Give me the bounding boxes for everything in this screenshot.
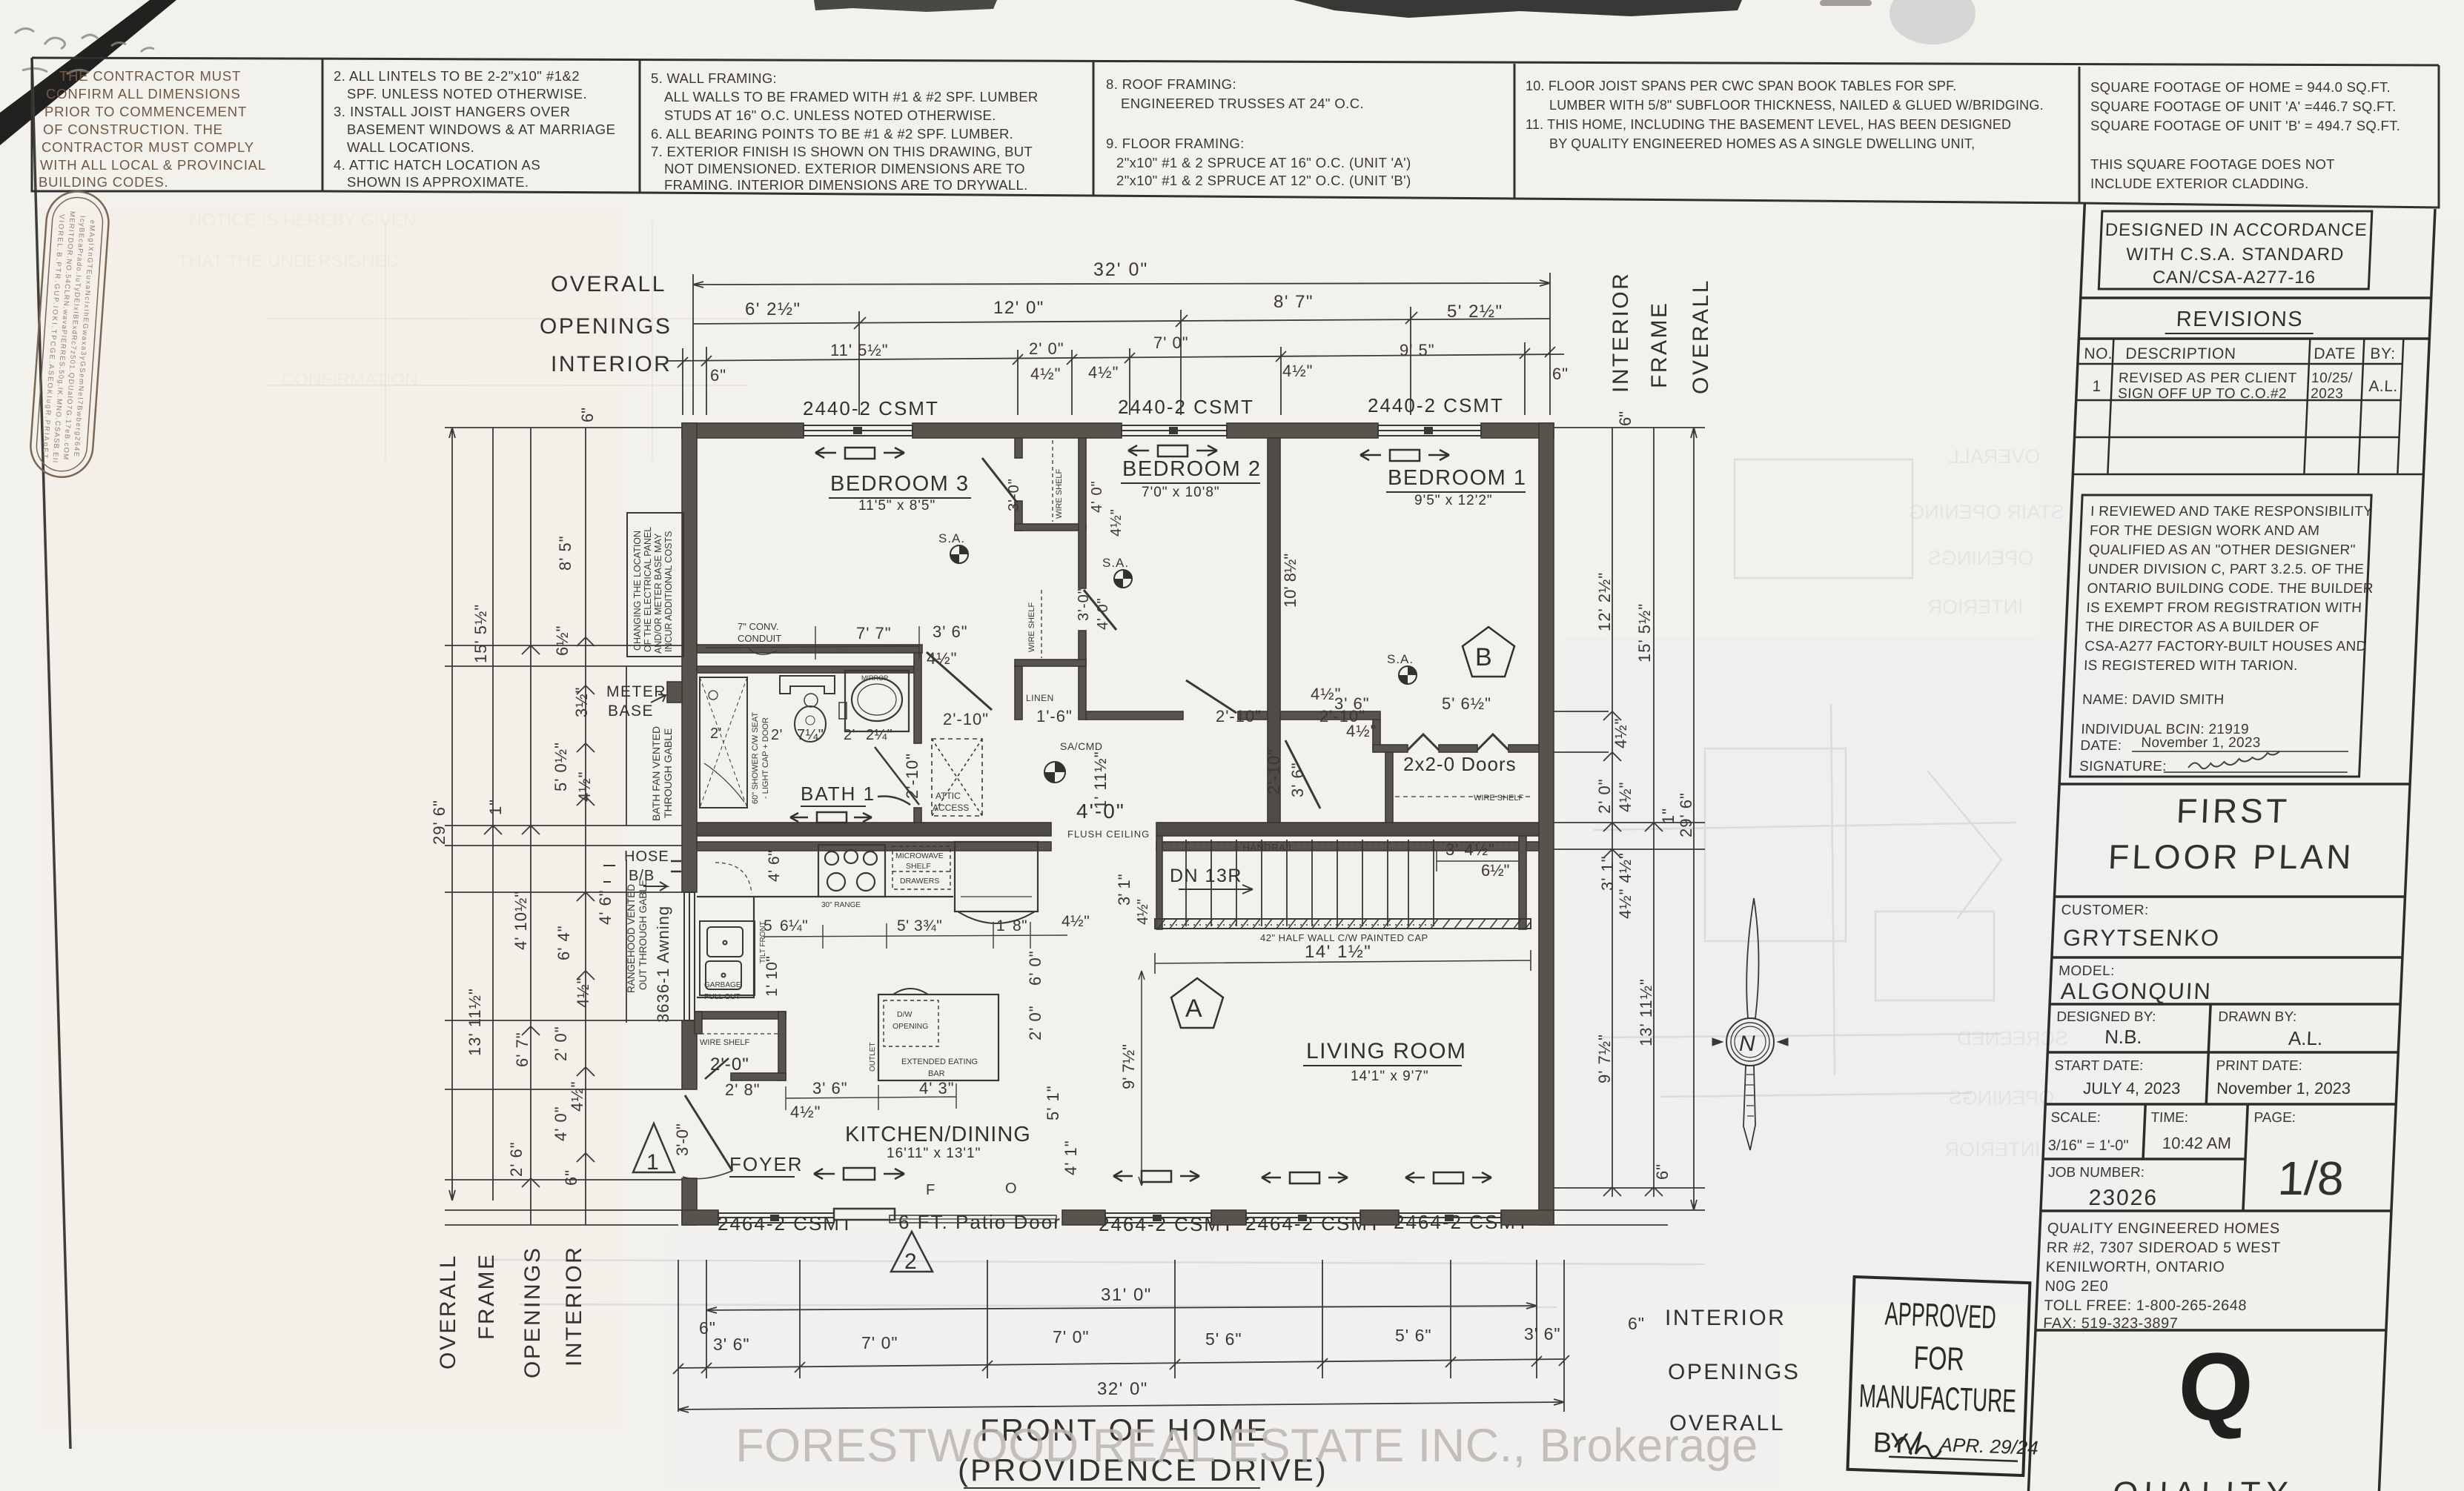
svg-text:THE CONTRACTOR MUST: THE CONTRACTOR MUST [59, 68, 241, 84]
svg-text:BY:: BY: [2370, 345, 2396, 362]
svg-text:3'-0": 3'-0" [673, 1123, 692, 1156]
svg-text:6' 0": 6' 0" [1026, 950, 1044, 986]
svg-text:3' 1": 3' 1" [1115, 874, 1133, 906]
svg-text:6' 4": 6' 4" [554, 925, 573, 960]
svg-text:2': 2' [771, 727, 783, 743]
svg-text:12' 2½": 12' 2½" [1595, 572, 1614, 631]
svg-text:DESIGNED BY:: DESIGNED BY: [2056, 1009, 2156, 1025]
svg-text:OUT THROUGH GABLE: OUT THROUGH GABLE [637, 880, 649, 990]
svg-text:IS REGISTERED WITH TARION.: IS REGISTERED WITH TARION. [2084, 658, 2299, 674]
svg-text:7' 0": 7' 0" [1153, 333, 1189, 352]
svg-text:CONFIRM ALL DIMENSIONS: CONFIRM ALL DIMENSIONS [46, 86, 241, 102]
svg-text:6. ALL BEARING POINTS TO BE #1: 6. ALL BEARING POINTS TO BE #1 & #2 SPF.… [651, 126, 1013, 142]
svg-text:DATE: DATE [2314, 345, 2356, 362]
svg-text:FLUSH CEILING: FLUSH CEILING [1067, 828, 1150, 840]
svg-text:JULY 4, 2023: JULY 4, 2023 [2083, 1079, 2181, 1098]
svg-text:4' 1": 4' 1" [1062, 1140, 1080, 1175]
svg-text:6": 6" [562, 1169, 580, 1186]
svg-text:FRAMING. INTERIOR DIMENSIONS A: FRAMING. INTERIOR DIMENSIONS ARE TO DRYW… [664, 177, 1028, 193]
svg-text:CSA-A277 FACTORY-BUILT HOUSES: CSA-A277 FACTORY-BUILT HOUSES AND [2084, 639, 2367, 654]
svg-text:ONTARIO BUILDING CODE. THE BUI: ONTARIO BUILDING CODE. THE BUILDER [2087, 581, 2374, 597]
svg-text:7' 7": 7' 7" [856, 624, 892, 642]
svg-text:CAN/CSA-A277-16: CAN/CSA-A277-16 [2152, 268, 2316, 288]
svg-text:INCLUDE EXTERIOR CLADDING.: INCLUDE EXTERIOR CLADDING. [2090, 176, 2309, 191]
svg-text:FOR: FOR [1913, 1340, 1965, 1378]
svg-text:QUALITY ENGINEERED HOMES: QUALITY ENGINEERED HOMES [2047, 1221, 2280, 1237]
svg-text:OPENINGS: OPENINGS [1928, 547, 2034, 569]
svg-text:2. ALL LINTELS TO BE 2-2"x10": 2. ALL LINTELS TO BE 2-2"x10" #1&2 [334, 68, 580, 84]
svg-text:4' 10½": 4' 10½" [511, 891, 530, 950]
svg-text:INTERIOR: INTERIOR [1944, 1138, 2040, 1160]
svg-text:ENGINEERED TRUSSES AT 24" O.C.: ENGINEERED TRUSSES AT 24" O.C. [1121, 96, 1364, 111]
svg-text:THROUGH GABLE: THROUGH GABLE [662, 728, 674, 818]
svg-text:Q: Q [2176, 1332, 2255, 1441]
svg-text:8' 5": 8' 5" [556, 535, 574, 571]
svg-text:WALL LOCATIONS.: WALL LOCATIONS. [347, 139, 474, 155]
svg-text:60" SHOWER C/W SEAT: 60" SHOWER C/W SEAT [751, 712, 760, 804]
svg-text:32' 0": 32' 0" [1097, 1379, 1148, 1399]
svg-text:4½": 4½" [790, 1103, 821, 1121]
svg-text:RR #2, 7307 SIDEROAD 5 WEST: RR #2, 7307 SIDEROAD 5 WEST [2046, 1240, 2281, 1256]
svg-text:10:42 AM: 10:42 AM [2162, 1134, 2231, 1152]
svg-text:ACCESS: ACCESS [933, 803, 969, 813]
svg-text:BY: BY [1872, 1427, 1909, 1460]
svg-text:BASEMENT WINDOWS & AT MARRIAGE: BASEMENT WINDOWS & AT MARRIAGE [347, 122, 615, 137]
svg-text:4½": 4½" [1062, 913, 1090, 930]
svg-text:4' 0": 4' 0" [1095, 597, 1111, 630]
svg-text:LUMBER WITH 5/8" SUBFLOOR THIC: LUMBER WITH 5/8" SUBFLOOR THICKNESS, NAI… [1549, 98, 2044, 113]
svg-text:6' 7": 6' 7" [513, 1032, 531, 1067]
svg-text:INTERIOR: INTERIOR [1927, 596, 2023, 618]
svg-text:2': 2' [710, 725, 722, 742]
svg-text:5' 6½": 5' 6½" [1442, 694, 1491, 713]
svg-text:2' 6": 2' 6" [507, 1141, 526, 1177]
svg-text:10' 8½": 10' 8½" [1281, 554, 1299, 608]
svg-text:2023: 2023 [2311, 386, 2344, 402]
svg-text:4½": 4½" [1616, 782, 1635, 812]
svg-text:2"x10" #1 & 2 SPRUCE AT 12" O.: 2"x10" #1 & 2 SPRUCE AT 12" O.C. (UNIT '… [1116, 173, 1411, 188]
svg-text:REVISIONS: REVISIONS [2176, 308, 2304, 331]
svg-text:November 1, 2023: November 1, 2023 [2141, 735, 2261, 751]
svg-text:PRIOR TO COMMENCEMENT: PRIOR TO COMMENCEMENT [44, 104, 247, 119]
svg-text:8. ROOF FRAMING:: 8. ROOF FRAMING: [1106, 76, 1236, 92]
svg-text:KENILWORTH, ONTARIO: KENILWORTH, ONTARIO [2045, 1259, 2225, 1275]
svg-text:BEDROOM 3: BEDROOM 3 [830, 472, 970, 496]
svg-text:DATE:: DATE: [2080, 738, 2122, 754]
svg-text:HOSE: HOSE [624, 849, 669, 865]
svg-text:OVERALL: OVERALL [1948, 445, 2041, 468]
svg-text:METER: METER [606, 683, 666, 700]
svg-text:4½": 4½" [1108, 508, 1125, 537]
svg-text:FOR THE DESIGN WORK AND AM: FOR THE DESIGN WORK AND AM [2090, 523, 2320, 539]
svg-text:1: 1 [2092, 378, 2102, 395]
svg-text:7'0" x 10'8": 7'0" x 10'8" [1142, 485, 1220, 500]
svg-text:SPF. UNLESS NOTED OTHERWISE.: SPF. UNLESS NOTED OTHERWISE. [347, 86, 587, 102]
svg-text:APPROVED: APPROVED [1884, 1295, 1997, 1335]
svg-text:STAIR OPENING: STAIR OPENING [1909, 501, 2064, 523]
svg-text:4½": 4½" [1135, 899, 1151, 925]
svg-text:2440-2 CSMT: 2440-2 CSMT [803, 397, 939, 419]
svg-text:BUILDING CODES.: BUILDING CODES. [39, 174, 168, 190]
svg-text:NOT DIMENSIONED. EXTERIOR DIME: NOT DIMENSIONED. EXTERIOR DIMENSIONS ARE… [664, 161, 1025, 176]
svg-text:11. THIS HOME, INCLUDING THE B: 11. THIS HOME, INCLUDING THE BASEMENT LE… [1526, 117, 2011, 132]
svg-text:7' 0": 7' 0" [1053, 1327, 1090, 1346]
svg-text:MICROWAVE: MICROWAVE [895, 851, 944, 860]
svg-text:OUTLET: OUTLET [869, 1043, 877, 1072]
svg-text:3. INSTALL JOIST HANGERS OVER: 3. INSTALL JOIST HANGERS OVER [334, 104, 571, 119]
svg-text:31' 0": 31' 0" [1101, 1285, 1152, 1305]
svg-text:S.A.: S.A. [1387, 652, 1414, 666]
svg-text:2': 2' [844, 727, 855, 743]
svg-text:2¼": 2¼" [866, 727, 892, 743]
svg-text:1: 1 [646, 1150, 659, 1175]
svg-text:5' 6": 5' 6" [1205, 1329, 1242, 1349]
svg-text:JOB NUMBER:: JOB NUMBER: [2048, 1165, 2145, 1180]
svg-text:SHELF: SHELF [906, 862, 931, 871]
svg-text:4½": 4½" [927, 649, 957, 668]
svg-text:OPENINGS: OPENINGS [540, 314, 672, 339]
svg-text:2440-2 CSMT: 2440-2 CSMT [1368, 394, 1504, 416]
svg-text:2'-10": 2'-10" [1216, 707, 1262, 725]
svg-text:4½" 4½": 4½" 4½" [1616, 852, 1635, 919]
svg-text:NOTICE IS HEREBY GIVEN: NOTICE IS HEREBY GIVEN [189, 210, 416, 230]
svg-text:16'11" x 13'1": 16'11" x 13'1" [887, 1146, 981, 1161]
svg-text:SQUARE FOOTAGE OF UNIT 'A' =44: SQUARE FOOTAGE OF UNIT 'A' =446.7 SQ.FT. [2090, 99, 2397, 114]
svg-text:STUDS AT 16" O.C. UNLESS NOTED: STUDS AT 16" O.C. UNLESS NOTED OTHERWISE… [664, 107, 996, 123]
svg-text:BATH 1: BATH 1 [801, 783, 875, 805]
svg-text:6": 6" [1552, 365, 1569, 383]
svg-text:START DATE:: START DATE: [2054, 1058, 2144, 1074]
svg-text:7. EXTERIOR FINISH IS SHOWN ON: 7. EXTERIOR FINISH IS SHOWN ON THIS DRAW… [651, 144, 1033, 159]
svg-text:N0G 2E0: N0G 2E0 [2044, 1278, 2109, 1295]
svg-text:○ HANDRAIL: ○ HANDRAIL [1233, 842, 1294, 853]
svg-text:FRAME: FRAME [1647, 302, 1672, 389]
svg-text:6": 6" [1616, 411, 1635, 426]
svg-text:5: 5 [764, 917, 772, 934]
svg-text:3/16" = 1'-0": 3/16" = 1'-0" [2047, 1138, 2129, 1154]
svg-text:O: O [1005, 1180, 1017, 1197]
svg-text:8' 7": 8' 7" [1274, 292, 1314, 312]
svg-text:5. WALL FRAMING:: 5. WALL FRAMING: [651, 70, 777, 86]
svg-text:WIRE SHELF: WIRE SHELF [1474, 794, 1524, 803]
svg-text:6' 2½": 6' 2½" [745, 299, 801, 319]
svg-text:N: N [1739, 1032, 1755, 1056]
svg-text:BATH FAN VENTED: BATH FAN VENTED [650, 726, 662, 821]
svg-text:TOLL FREE: 1-800-265-2648: TOLL FREE: 1-800-265-2648 [2044, 1298, 2248, 1314]
svg-text:WIRE SHELF: WIRE SHELF [1027, 602, 1036, 652]
svg-text:9'5" x 12'2": 9'5" x 12'2" [1414, 493, 1493, 508]
svg-text:2x2-0 Doors: 2x2-0 Doors [1403, 753, 1517, 775]
svg-text:THE DIRECTOR AS A BUILDER OF: THE DIRECTOR AS A BUILDER OF [2085, 620, 2319, 635]
svg-text:BEDROOM 1: BEDROOM 1 [1388, 466, 1527, 490]
svg-text:QUALIFIED AS AN "OTHER DESIGNE: QUALIFIED AS AN "OTHER DESIGNER" [2088, 542, 2356, 558]
svg-text:PULL OUT: PULL OUT [704, 993, 741, 1001]
svg-text:OVERALL: OVERALL [436, 1254, 460, 1369]
svg-text:DESIGNED IN ACCORDANCE: DESIGNED IN ACCORDANCE [2104, 220, 2368, 240]
svg-text:PRINT DATE:: PRINT DATE: [2216, 1058, 2302, 1074]
svg-text:10. FLOOR JOIST SPANS PER CWC: 10. FLOOR JOIST SPANS PER CWC SPAN BOOK … [1526, 79, 1956, 93]
svg-text:IS EXEMPT FROM REGISTRATION WI: IS EXEMPT FROM REGISTRATION WITH [2086, 600, 2362, 616]
svg-text:4½": 4½" [1030, 365, 1061, 383]
svg-text:OF CONSTRUCTION. THE: OF CONSTRUCTION. THE [43, 122, 223, 137]
svg-text:5' 6": 5' 6" [1395, 1326, 1432, 1345]
svg-text:MANUFACTURE: MANUFACTURE [1858, 1378, 2017, 1419]
svg-text:FORESTWOOD REAL ESTATE INC., B: FORESTWOOD REAL ESTATE INC., Brokerage [735, 1420, 1758, 1472]
svg-text:4. ATTIC HATCH LOCATION AS: 4. ATTIC HATCH LOCATION AS [334, 157, 540, 173]
svg-text:4' 6": 4' 6" [596, 889, 615, 925]
svg-text:11'5" x 8'5": 11'5" x 8'5" [858, 498, 935, 514]
svg-text:FOYER: FOYER [729, 1153, 804, 1175]
svg-text:OVERALL: OVERALL [551, 272, 666, 296]
svg-text:ATTIC: ATTIC [935, 791, 961, 801]
svg-text:MODEL:: MODEL: [2059, 963, 2116, 979]
svg-text:2' 0": 2' 0" [1595, 778, 1614, 814]
svg-text:6": 6" [578, 408, 597, 422]
svg-text:QUALITY: QUALITY [2112, 1475, 2294, 1491]
svg-text:4½": 4½" [1088, 363, 1119, 382]
svg-text:RANGEHOOD VENTED: RANGEHOOD VENTED [626, 884, 637, 993]
svg-text:30" RANGE: 30" RANGE [821, 901, 861, 909]
svg-text:7' 0": 7' 0" [861, 1333, 898, 1352]
svg-text:B: B [1475, 643, 1492, 671]
svg-text:1: 1 [996, 917, 1005, 934]
svg-text:3636-1 Awning: 3636-1 Awning [654, 906, 672, 1023]
svg-text:INCUR ADDITIONAL COSTS: INCUR ADDITIONAL COSTS [663, 531, 674, 652]
svg-text:DESCRIPTION: DESCRIPTION [2125, 345, 2236, 362]
svg-text:TIME:: TIME: [2150, 1110, 2189, 1126]
svg-text:A.L.: A.L. [2288, 1027, 2323, 1049]
svg-text:F: F [926, 1182, 935, 1198]
svg-text:OPENING: OPENING [892, 1022, 928, 1031]
svg-text:4' 0": 4' 0" [1089, 480, 1105, 513]
svg-text:OPENINGS: OPENINGS [520, 1246, 545, 1378]
svg-text:3' 6": 3' 6" [1524, 1324, 1561, 1344]
svg-text:NO.: NO. [2084, 345, 2113, 362]
svg-text:OF THE ELECTRICAL PANEL: OF THE ELECTRICAL PANEL [643, 527, 653, 652]
svg-text:5' 3¾": 5' 3¾" [897, 917, 942, 934]
svg-text:2' 0": 2' 0" [1026, 1005, 1044, 1040]
svg-text:9' 7½": 9' 7½" [1119, 1044, 1138, 1089]
svg-text:S.A.: S.A. [1102, 556, 1129, 570]
svg-text:KITCHEN/DINING: KITCHEN/DINING [845, 1123, 1031, 1146]
svg-text:SIGN OFF UP TO C.O.#2: SIGN OFF UP TO C.O.#2 [2118, 386, 2288, 402]
svg-text:INTERIOR: INTERIOR [1665, 1306, 1786, 1330]
svg-text:WITH ALL LOCAL & PROVINCIAL: WITH ALL LOCAL & PROVINCIAL [40, 157, 266, 173]
svg-text:DRAWERS: DRAWERS [900, 877, 939, 886]
svg-text:32' 0": 32' 0" [1093, 259, 1148, 280]
svg-text:4½": 4½" [1282, 362, 1313, 380]
svg-text:9' 7½": 9' 7½" [1595, 1034, 1614, 1083]
svg-text:INTERIOR: INTERIOR [1609, 272, 1633, 393]
svg-text:2' 0": 2' 0" [552, 1026, 570, 1061]
svg-text:2' 8": 2' 8" [725, 1080, 761, 1099]
svg-text:10/25/: 10/25/ [2311, 371, 2354, 386]
svg-text:6¼": 6¼" [780, 917, 808, 934]
svg-text:OPENINGS: OPENINGS [1668, 1360, 1800, 1384]
svg-text:DRAWN BY:: DRAWN BY: [2218, 1009, 2297, 1025]
svg-text:15' 5½": 15' 5½" [471, 604, 490, 663]
svg-text:6": 6" [1653, 1163, 1672, 1180]
svg-text:FRAME: FRAME [474, 1253, 499, 1341]
svg-text:13' 11½": 13' 11½" [466, 988, 484, 1056]
svg-text:OPENINGS: OPENINGS [1949, 1086, 2055, 1109]
svg-text:GRYTSENKO: GRYTSENKO [2062, 925, 2221, 951]
svg-text:9. FLOOR FRAMING:: 9. FLOOR FRAMING: [1106, 136, 1245, 151]
svg-text:INTERIOR: INTERIOR [562, 1246, 586, 1367]
svg-text:1": 1" [486, 799, 505, 815]
svg-text:SHOWN IS APPROXIMATE.: SHOWN IS APPROXIMATE. [347, 174, 529, 190]
svg-text:FIRST: FIRST [2176, 791, 2291, 830]
svg-text:6½": 6½" [553, 625, 572, 656]
svg-text:AND/OR METER BASE MAY: AND/OR METER BASE MAY [653, 533, 663, 654]
svg-text:1'-6": 1'-6" [1036, 707, 1073, 725]
svg-text:CHANGING THE LOCATION: CHANGING THE LOCATION [632, 531, 643, 651]
svg-text:DN 13R: DN 13R [1170, 866, 1242, 886]
svg-text:4½": 4½" [1346, 722, 1377, 740]
svg-text:OVERALL: OVERALL [1689, 279, 1713, 394]
svg-text:PAGE:: PAGE: [2253, 1110, 2296, 1126]
svg-text:23026: 23026 [2088, 1186, 2159, 1210]
svg-text:3' 6": 3' 6" [933, 622, 968, 641]
svg-text:November 1, 2023: November 1, 2023 [2216, 1079, 2351, 1098]
svg-text:SIGNATURE:: SIGNATURE: [2079, 759, 2167, 774]
svg-text:CONFIRMATION: CONFIRMATION [282, 370, 418, 390]
svg-text:1/8: 1/8 [2276, 1152, 2345, 1205]
svg-text:6": 6" [1628, 1314, 1645, 1333]
svg-text:4' 6": 4' 6" [766, 850, 783, 882]
svg-text:15' 5½": 15' 5½" [1635, 603, 1654, 663]
svg-text:2440-2 CSMT: 2440-2 CSMT [1118, 396, 1254, 418]
svg-text:4½": 4½" [1612, 718, 1630, 748]
svg-text:5' 1": 5' 1" [1044, 1085, 1062, 1120]
svg-text:ALGONQUIN: ALGONQUIN [2060, 978, 2212, 1004]
svg-text:THAT THE UNDERSIGNED: THAT THE UNDERSIGNED [178, 251, 400, 271]
svg-text:14'1" x 9'7": 14'1" x 9'7" [1351, 1069, 1429, 1084]
svg-text:INTERIOR: INTERIOR [551, 352, 672, 376]
svg-text:REVISED AS PER CLIENT: REVISED AS PER CLIENT [2119, 371, 2297, 386]
svg-text:8": 8" [1013, 917, 1027, 934]
svg-text:7¼": 7¼" [797, 727, 824, 743]
svg-text:3' 4½": 3' 4½" [1445, 840, 1495, 859]
svg-text:4½": 4½" [1311, 685, 1341, 703]
svg-text:5' 2½": 5' 2½" [1447, 302, 1503, 322]
svg-text:2"x10" #1 & 2 SPRUCE AT 16" O.: 2"x10" #1 & 2 SPRUCE AT 16" O.C. (UNIT '… [1116, 155, 1411, 170]
svg-text:A: A [1185, 994, 1202, 1023]
svg-text:GARBAGE: GARBAGE [704, 981, 741, 989]
svg-text:FLOOR PLAN: FLOOR PLAN [2107, 837, 2355, 876]
svg-text:BASE: BASE [608, 703, 654, 720]
svg-text:SCALE:: SCALE: [2050, 1110, 2101, 1126]
svg-text:11' 5½": 11' 5½" [830, 341, 889, 359]
svg-text:D/W: D/W [897, 1010, 913, 1019]
svg-text:4½": 4½" [568, 1081, 586, 1112]
svg-text:9' 5": 9' 5" [1400, 341, 1435, 359]
svg-text:CUSTOMER:: CUSTOMER: [2061, 903, 2149, 918]
svg-text:1": 1" [1659, 808, 1678, 824]
svg-text:29' 6": 29' 6" [1677, 792, 1695, 837]
svg-text:3' 6": 3' 6" [1288, 762, 1307, 797]
svg-text:3' 6": 3' 6" [812, 1079, 848, 1098]
svg-text:2'-0": 2'-0" [710, 1055, 749, 1075]
svg-text:12' 0": 12' 0" [993, 298, 1044, 318]
svg-text:I REVIEWED AND TAKE RESPONSIBI: I REVIEWED AND TAKE RESPONSIBILITY [2090, 504, 2374, 519]
svg-text:2'-10": 2'-10" [1265, 748, 1283, 794]
svg-text:6½": 6½" [1481, 861, 1509, 880]
svg-text:ALL WALLS TO BE FRAMED WITH #1: ALL WALLS TO BE FRAMED WITH #1 & #2 SPF.… [664, 89, 1039, 104]
svg-text:BEDROOM 2: BEDROOM 2 [1122, 457, 1262, 481]
svg-text:APR. 29/24: APR. 29/24 [1938, 1433, 2039, 1459]
svg-text:5' 0½": 5' 0½" [552, 742, 570, 791]
svg-text:LIVING ROOM: LIVING ROOM [1306, 1039, 1467, 1063]
svg-text:SQUARE FOOTAGE OF HOME = 944.0: SQUARE FOOTAGE OF HOME = 944.0 SQ.FT. [2090, 79, 2391, 95]
svg-text:2: 2 [904, 1249, 917, 1274]
svg-text:N.B.: N.B. [2104, 1026, 2143, 1048]
svg-text:MIRROR: MIRROR [861, 674, 889, 682]
svg-text:BY QUALITY ENGINEERED HOMES AS: BY QUALITY ENGINEERED HOMES AS A SINGLE … [1549, 136, 1975, 151]
svg-text:CONTRACTOR MUST COMPLY: CONTRACTOR MUST COMPLY [42, 139, 254, 155]
svg-text:A.L.: A.L. [2368, 378, 2398, 395]
svg-text:THIS SQUARE FOOTAGE DOES NOT: THIS SQUARE FOOTAGE DOES NOT [2090, 156, 2335, 172]
svg-text:4' 3": 4' 3" [919, 1079, 955, 1098]
svg-text:- LIGHT CAP + DOOR: - LIGHT CAP + DOOR [761, 717, 770, 799]
svg-text:BAR: BAR [928, 1069, 945, 1078]
svg-text:6": 6" [710, 366, 726, 385]
svg-text:13' 11½": 13' 11½" [1637, 978, 1655, 1046]
svg-text:WIRE SHELF: WIRE SHELF [1055, 468, 1064, 519]
svg-text:WITH C.S.A. STANDARD: WITH C.S.A. STANDARD [2126, 245, 2345, 265]
svg-text:2'-10": 2'-10" [903, 753, 921, 799]
svg-text:2' 0": 2' 0" [1029, 339, 1064, 358]
svg-text:3' 6": 3' 6" [713, 1335, 750, 1354]
svg-text:14' 1½": 14' 1½" [1305, 942, 1371, 962]
svg-text:4½": 4½" [575, 771, 594, 802]
svg-text:FAX: 519-323-3897: FAX: 519-323-3897 [2043, 1315, 2179, 1332]
svg-text:29' 6": 29' 6" [430, 800, 448, 845]
svg-text:3'-0": 3'-0" [1076, 588, 1092, 621]
svg-text:4½": 4½" [574, 977, 592, 1008]
svg-text:LINEN: LINEN [1026, 693, 1054, 703]
svg-text:3'-0": 3'-0" [1006, 478, 1022, 511]
svg-text:1' 10": 1' 10" [764, 956, 781, 997]
svg-text:EXTENDED EATING: EXTENDED EATING [901, 1057, 978, 1066]
svg-text:NAME: DAVID SMITH: NAME: DAVID SMITH [2082, 692, 2225, 708]
svg-text:WIRE SHELF: WIRE SHELF [700, 1038, 750, 1047]
svg-text:S.A.: S.A. [938, 531, 965, 545]
svg-text:UNDER DIVISION C, PART 3.2.5.: UNDER DIVISION C, PART 3.2.5. OF THE [2087, 562, 2364, 577]
svg-text:SCREENED: SCREENED [1957, 1027, 2068, 1049]
svg-text:1' 11½": 1' 11½" [1091, 751, 1110, 809]
svg-text:2'-10": 2'-10" [943, 710, 989, 728]
svg-text:SA/CMD: SA/CMD [1060, 740, 1102, 752]
svg-text:6 FT. Patio Door: 6 FT. Patio Door [898, 1211, 1062, 1233]
svg-text:3' 1": 3' 1" [1598, 855, 1617, 891]
svg-text:SQUARE FOOTAGE OF UNIT 'B' = 4: SQUARE FOOTAGE OF UNIT 'B' = 494.7 SQ.FT… [2090, 118, 2400, 133]
svg-text:3½": 3½" [572, 687, 591, 717]
